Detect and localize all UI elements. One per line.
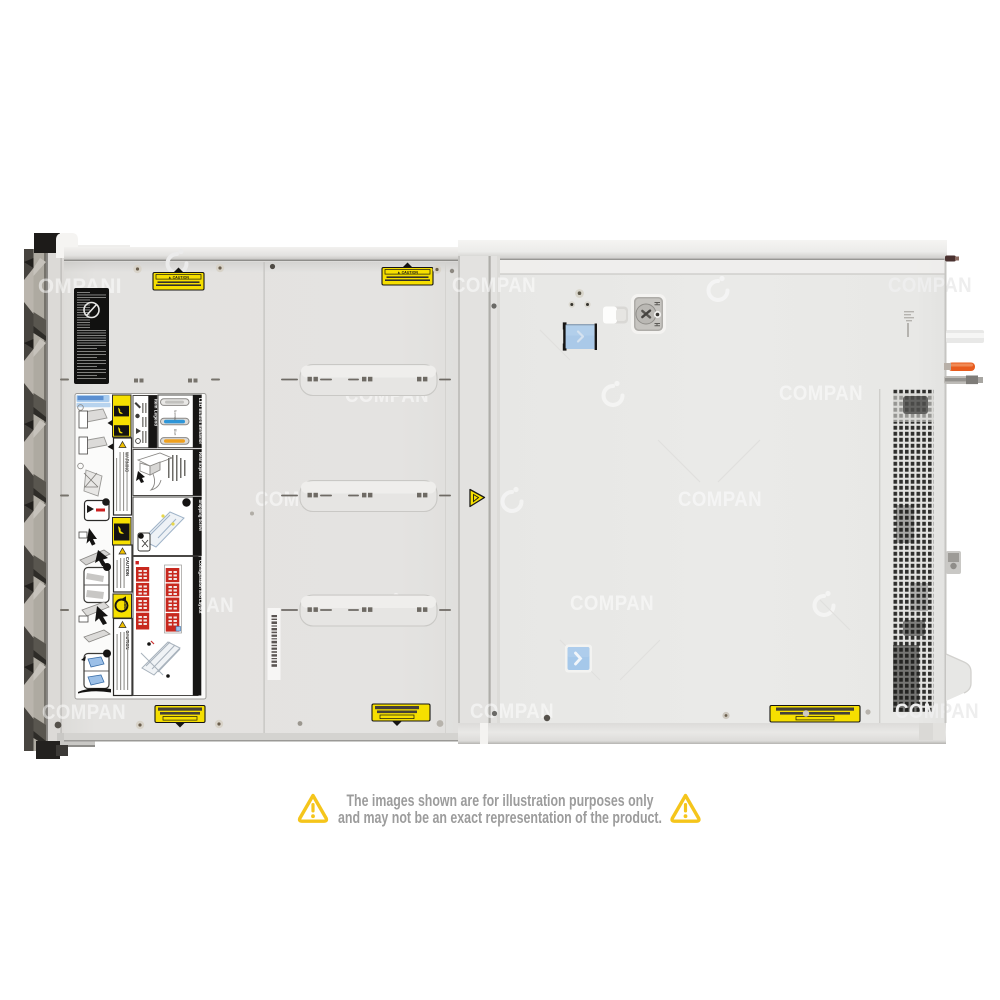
svg-text:COMPAN: COMPAN <box>895 700 979 723</box>
svg-text:COMPAN: COMPAN <box>470 700 554 723</box>
svg-text:Shipping Screw: Shipping Screw <box>198 500 203 532</box>
svg-text:▲ CAUTION: ▲ CAUTION <box>397 270 418 274</box>
svg-text:COMPAN: COMPAN <box>42 701 126 724</box>
svg-text:COMPAN: COMPAN <box>570 592 654 615</box>
svg-text:COMPAN: COMPAN <box>779 382 863 405</box>
svg-text:Rear Express: Rear Express <box>198 452 203 479</box>
svg-text:Normal: Normal <box>173 410 177 421</box>
svg-text:COMPAN: COMPAN <box>888 274 972 297</box>
svg-text:LED Button Behavior: LED Button Behavior <box>198 398 203 444</box>
svg-text:and may not be an exact repres: and may not be an exact representation o… <box>338 808 662 827</box>
svg-text:5min: 5min <box>123 602 128 612</box>
svg-text:Configuration and Layout: Configuration and Layout <box>198 560 203 614</box>
svg-text:▲ CAUTION: ▲ CAUTION <box>168 275 189 279</box>
svg-text:COMPAN: COMPAN <box>452 274 536 297</box>
svg-text:COMPAN: COMPAN <box>678 488 762 511</box>
svg-text:Blue: Blue <box>173 429 177 436</box>
svg-text:CAUTION: CAUTION <box>125 557 130 576</box>
